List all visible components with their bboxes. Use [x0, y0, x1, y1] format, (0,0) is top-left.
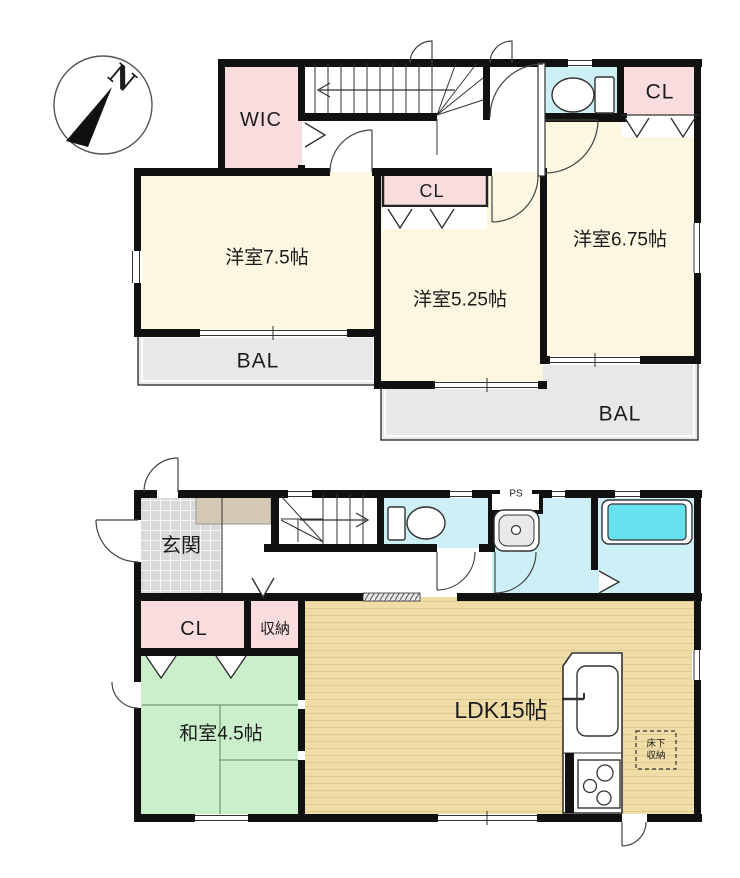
kitchen-counter: [562, 653, 622, 813]
label-entrance: 玄関: [161, 534, 201, 557]
label-closet-mid: CL: [419, 181, 444, 201]
kitchen-stove-icon: [578, 760, 620, 808]
label-underfloor-1: 床下: [646, 738, 665, 750]
sliding-door-slit-2: [298, 751, 305, 760]
washbasin-icon: [494, 510, 539, 551]
bathtub-icon: [602, 500, 692, 544]
floorplan-canvas: N: [0, 0, 740, 878]
pipe-space: PS: [490, 487, 541, 512]
label-closet-1f: CL: [180, 618, 208, 640]
stairs-1f: [281, 494, 368, 544]
label-bedroom-525: 洋室5.25帖: [413, 289, 507, 311]
floor1-plan: PS: [96, 458, 703, 846]
shoe-cabinet: [196, 496, 271, 524]
label-japanese-room: 和室4.5帖: [179, 723, 262, 745]
label-balcony-right: BAL: [599, 403, 642, 426]
stairs-up-arrow-1f: [300, 513, 368, 527]
floor2-plan: WIC CL CL 洋室7.5帖 洋室5.25帖 洋室6.75帖 BAL BAL: [130, 41, 703, 440]
toilet-partition-2f: [538, 63, 545, 176]
hall-ldk-divider: [363, 593, 420, 601]
label-closet-right: CL: [646, 81, 675, 104]
toilet-icon-2f: [552, 77, 614, 113]
label-storage: 収納: [260, 621, 290, 638]
label-balcony-left: BAL: [237, 350, 280, 373]
label-pipe-space: PS: [509, 489, 523, 500]
label-ldk: LDK15帖: [454, 697, 547, 723]
compass-needle-icon: [66, 87, 112, 147]
compass-rose: N: [54, 56, 152, 154]
label-wic: WIC: [240, 109, 282, 131]
sliding-door-slit-1: [298, 700, 305, 709]
toilet-icon-1f: [388, 507, 445, 540]
label-bedroom-75: 洋室7.5帖: [225, 247, 308, 269]
label-underfloor-2: 収納: [646, 750, 665, 762]
label-bedroom-675: 洋室6.75帖: [573, 229, 667, 251]
